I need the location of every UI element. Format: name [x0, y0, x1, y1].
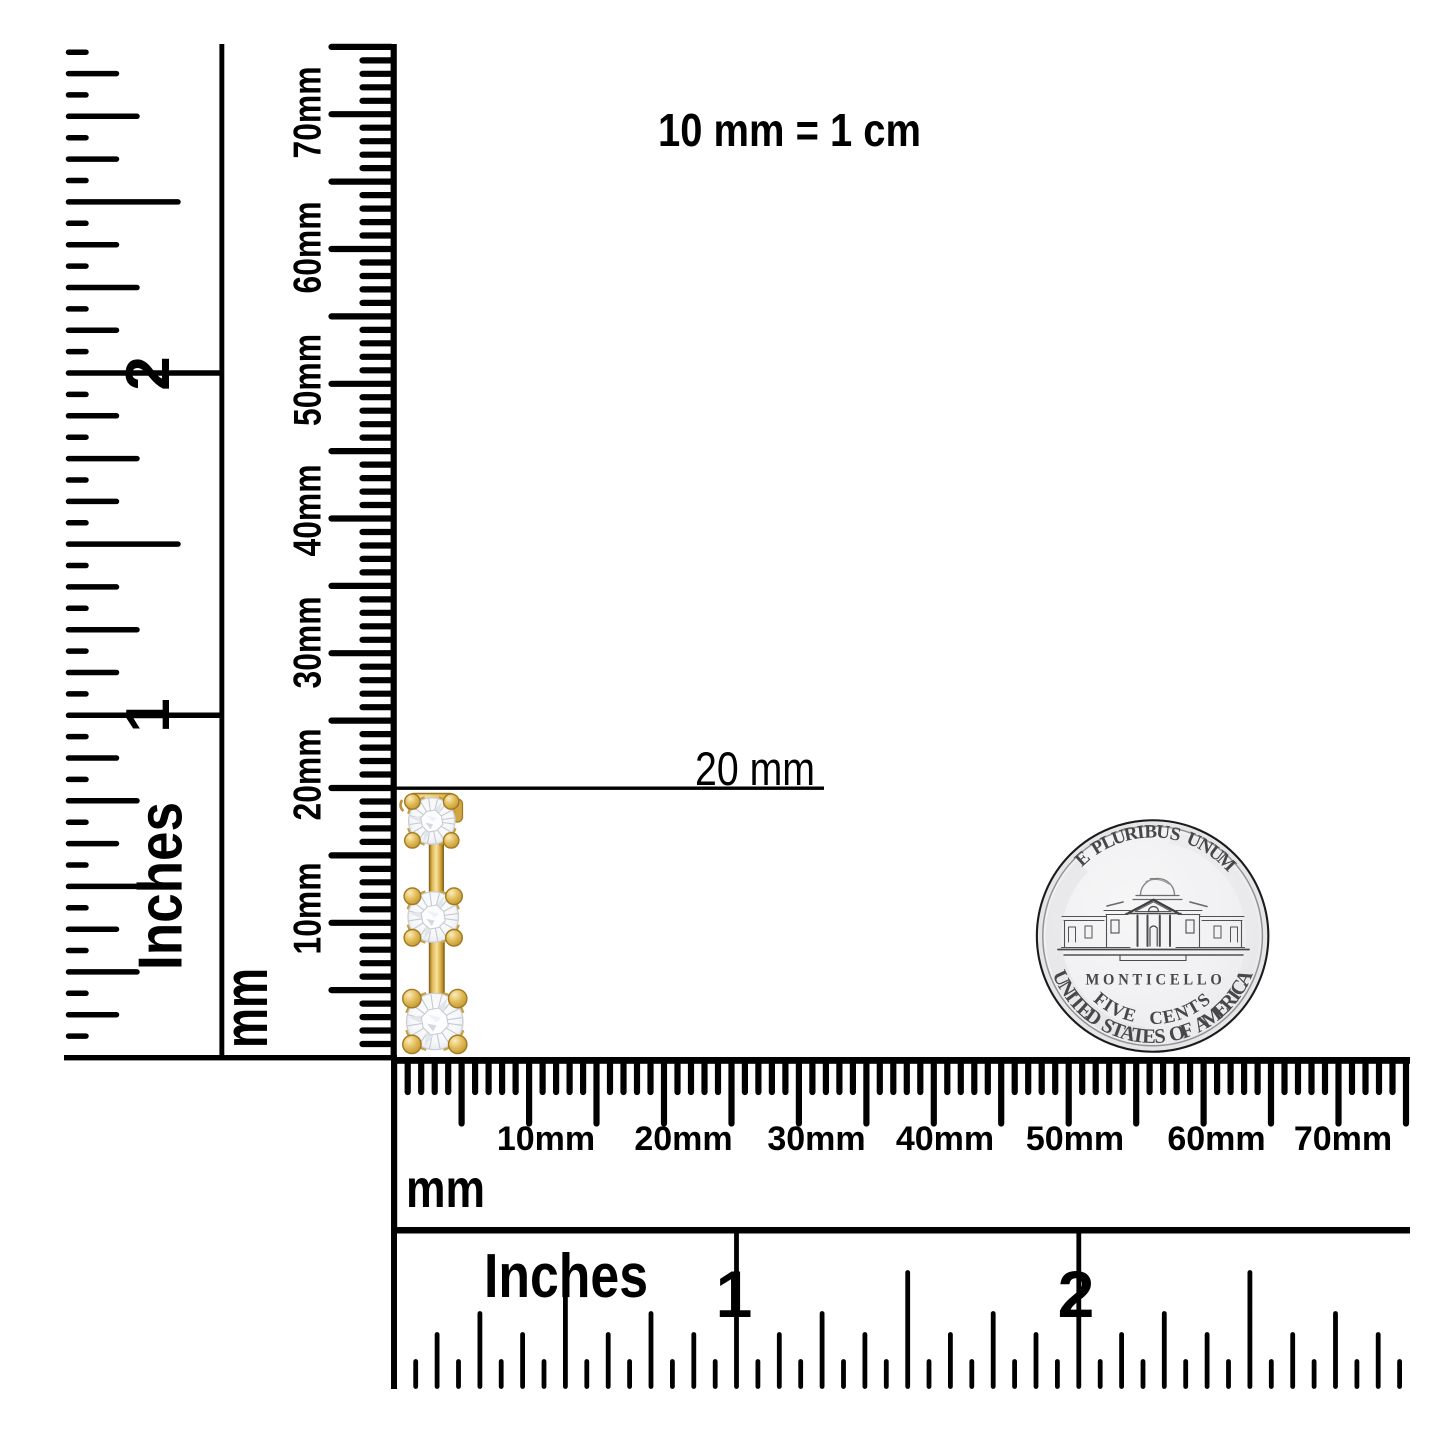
svg-text:20mm: 20mm: [634, 1120, 732, 1158]
svg-text:40mm: 40mm: [896, 1120, 994, 1158]
svg-text:10mm: 10mm: [497, 1120, 595, 1158]
svg-text:10 mm = 1 cm: 10 mm = 1 cm: [658, 104, 921, 156]
svg-text:Inches: Inches: [127, 802, 196, 970]
svg-text:2: 2: [1058, 1257, 1095, 1331]
svg-text:40mm: 40mm: [287, 465, 330, 557]
svg-text:60mm: 60mm: [287, 202, 330, 294]
svg-text:1: 1: [716, 1257, 753, 1331]
svg-text:mm: mm: [212, 968, 281, 1048]
svg-text:70mm: 70mm: [1294, 1120, 1392, 1158]
svg-text:1: 1: [114, 698, 183, 732]
svg-text:70mm: 70mm: [287, 67, 330, 159]
svg-text:MONTICELLO: MONTICELLO: [1086, 972, 1226, 989]
svg-text:30mm: 30mm: [767, 1120, 865, 1158]
svg-text:50mm: 50mm: [1026, 1120, 1124, 1158]
svg-text:2: 2: [114, 356, 183, 390]
svg-text:10mm: 10mm: [287, 863, 330, 955]
svg-text:20mm: 20mm: [287, 729, 330, 821]
svg-text:Inches: Inches: [484, 1242, 648, 1311]
svg-text:30mm: 30mm: [287, 597, 330, 689]
svg-text:50mm: 50mm: [287, 334, 330, 426]
svg-text:60mm: 60mm: [1167, 1120, 1265, 1158]
svg-text:mm: mm: [406, 1159, 485, 1219]
